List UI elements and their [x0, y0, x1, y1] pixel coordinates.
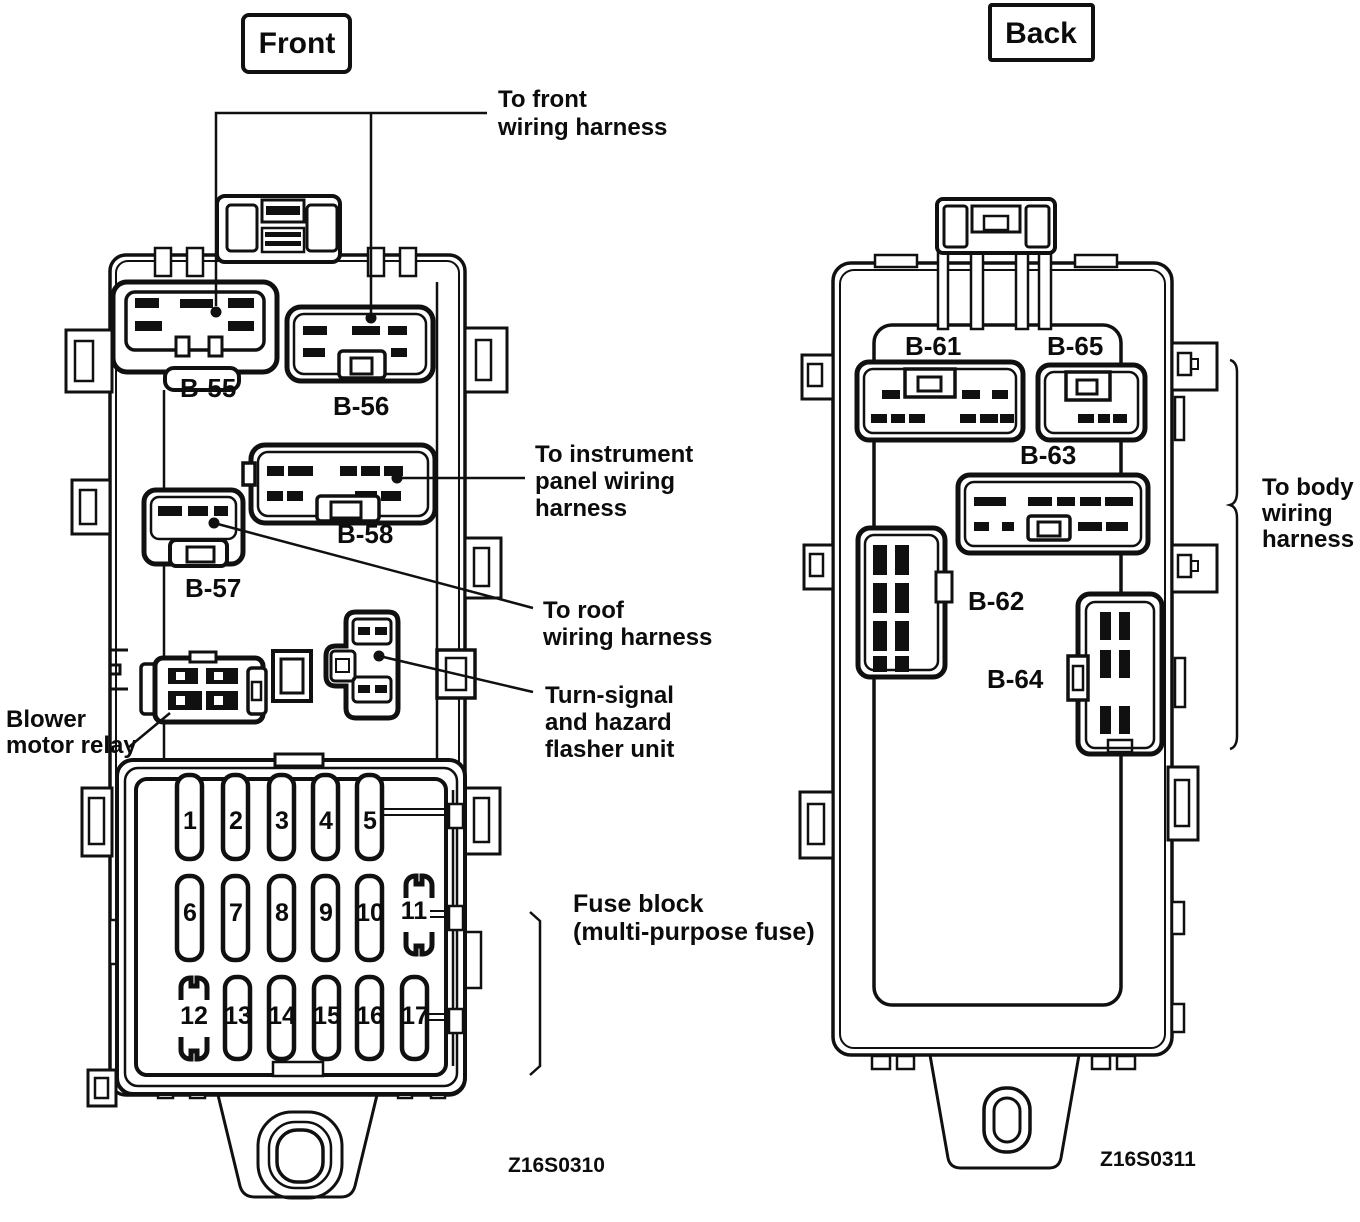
fuse-number-17: 17 — [401, 1002, 429, 1030]
back-bottom-tab — [930, 1055, 1079, 1168]
label-b63: B-63 — [1020, 440, 1076, 470]
label-b64: B-64 — [987, 664, 1044, 694]
annotation-to-instrument-harness: To instrument panel wiring harness — [535, 441, 693, 522]
fuse-number-5: 5 — [363, 807, 377, 835]
fuse-number-11: 11 — [401, 897, 428, 925]
connector-b65 — [1038, 365, 1145, 440]
fuse-number-13: 13 — [224, 1002, 252, 1030]
back-view-label: Back — [1005, 17, 1077, 50]
connector-b63 — [958, 475, 1148, 553]
svg-text:wiring harness: wiring harness — [497, 114, 667, 141]
fuse-number-1: 1 — [183, 807, 197, 835]
svg-text:To body: To body — [1262, 474, 1354, 501]
back-left-brackets — [800, 355, 833, 858]
label-b55: B-55 — [180, 373, 236, 403]
svg-text:flasher unit: flasher unit — [545, 736, 674, 763]
svg-text:harness: harness — [535, 495, 627, 522]
figure-code-back: Z16S0311 — [1100, 1148, 1196, 1171]
fuse-block-bracket — [530, 912, 540, 1075]
front-bottom-tab — [218, 1095, 377, 1198]
annotation-to-front-harness: To front wiring harness — [497, 86, 667, 141]
connector-b62 — [858, 528, 952, 677]
fuse-number-4: 4 — [319, 807, 333, 835]
annotation-to-body-harness: To body wiring harness — [1261, 474, 1354, 553]
annotation-blower-relay: Blower motor relay — [6, 706, 137, 759]
svg-text:wiring harness: wiring harness — [542, 624, 712, 651]
svg-text:Turn-signal: Turn-signal — [545, 682, 674, 709]
svg-text:and hazard: and hazard — [545, 709, 672, 736]
connector-b58 — [243, 445, 435, 523]
fuse-number-3: 3 — [275, 807, 289, 835]
connector-b64 — [1068, 594, 1162, 754]
connector-b56 — [287, 307, 433, 381]
front-title-box: Front — [243, 15, 350, 72]
fuse-box-diagram: Front — [0, 0, 1360, 1222]
svg-text:To front: To front — [498, 86, 587, 113]
svg-text:panel wiring: panel wiring — [535, 468, 675, 495]
label-b56: B-56 — [333, 391, 389, 421]
fuse-number-2: 2 — [229, 807, 243, 835]
back-view: Back — [800, 5, 1354, 1171]
back-right-brackets — [1168, 343, 1217, 1032]
label-b57: B-57 — [185, 573, 241, 603]
diagram-canvas: Front — [0, 0, 1360, 1222]
svg-text:motor relay: motor relay — [6, 732, 137, 759]
front-view-label: Front — [259, 27, 336, 60]
fuse-number-10: 10 — [356, 899, 384, 927]
svg-text:harness: harness — [1262, 526, 1354, 553]
label-b58: B-58 — [337, 519, 393, 549]
front-view: Front — [6, 15, 815, 1198]
fuse-number-9: 9 — [319, 899, 333, 927]
label-b65: B-65 — [1047, 331, 1103, 361]
blower-motor-relay — [141, 652, 266, 722]
fuse-block: 1 2 3 4 5 6 7 8 9 10 11 — [117, 754, 465, 1094]
b57-pin-dashes — [158, 506, 228, 516]
fuse-number-12: 12 — [180, 1002, 208, 1030]
annotation-fuse-block: Fuse block (multi-purpose fuse) — [573, 890, 815, 946]
svg-text:Blower: Blower — [6, 706, 86, 733]
svg-text:To instrument: To instrument — [535, 441, 693, 468]
figure-code-front: Z16S0310 — [508, 1154, 605, 1177]
to-body-bracket — [1230, 360, 1237, 749]
label-b62: B-62 — [968, 586, 1024, 616]
b65-pin-dashes — [1078, 414, 1127, 423]
svg-text:To roof: To roof — [543, 597, 625, 624]
fuse-number-15: 15 — [313, 1002, 341, 1030]
svg-text:Fuse block: Fuse block — [573, 890, 704, 918]
fuse-number-6: 6 — [183, 899, 197, 927]
fuse-number-16: 16 — [356, 1002, 384, 1030]
fuse-number-14: 14 — [268, 1002, 296, 1030]
svg-text:wiring: wiring — [1261, 500, 1333, 527]
fuse-puller-socket — [273, 651, 311, 701]
connector-b61 — [857, 362, 1023, 440]
front-top-connector — [217, 196, 340, 262]
turn-signal-flasher-unit — [326, 612, 398, 718]
annotation-turn-signal: Turn-signal and hazard flasher unit — [545, 682, 674, 763]
fuse-number-7: 7 — [229, 899, 243, 927]
back-title-box: Back — [990, 5, 1093, 60]
svg-text:(multi-purpose fuse): (multi-purpose fuse) — [573, 918, 815, 946]
annotation-to-roof-harness: To roof wiring harness — [542, 597, 712, 651]
label-b61: B-61 — [905, 331, 961, 361]
fuse-number-8: 8 — [275, 899, 289, 927]
